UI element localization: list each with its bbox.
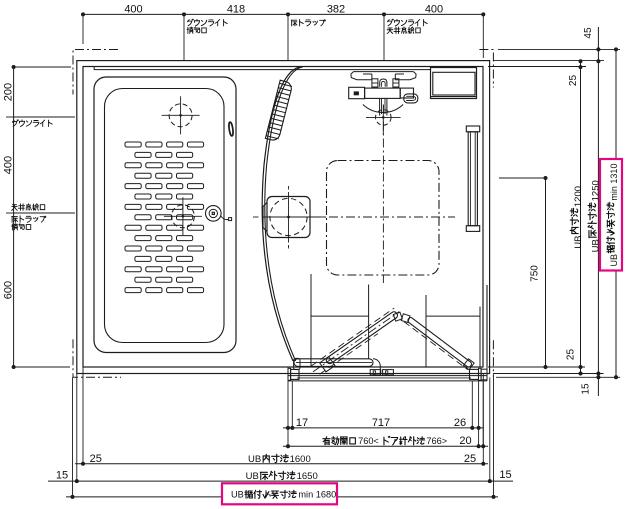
svg-text:418: 418	[227, 4, 245, 16]
svg-text:25: 25	[566, 349, 577, 361]
svg-text:UB: UB	[248, 454, 261, 465]
svg-text:400: 400	[124, 4, 142, 16]
svg-text:1600: 1600	[290, 454, 311, 465]
svg-text:1650: 1650	[297, 471, 318, 482]
svg-text:600: 600	[3, 281, 15, 299]
svg-text:15: 15	[56, 470, 68, 482]
svg-text:UB: UB	[609, 254, 619, 267]
svg-text:717: 717	[372, 417, 390, 429]
svg-text:min 1680: min 1680	[298, 490, 336, 500]
svg-text:1200: 1200	[573, 186, 584, 207]
svg-text:400: 400	[425, 4, 443, 16]
svg-text:400: 400	[3, 156, 15, 174]
svg-text:382: 382	[327, 4, 345, 16]
svg-text:min 1310: min 1310	[609, 164, 619, 201]
svg-text:25: 25	[568, 75, 579, 87]
svg-text:25: 25	[90, 453, 102, 465]
svg-text:UB: UB	[246, 471, 259, 482]
svg-text:45: 45	[583, 27, 594, 39]
svg-text:766>: 766>	[426, 436, 447, 446]
svg-text:17: 17	[296, 417, 308, 429]
svg-text:20: 20	[459, 435, 471, 447]
svg-text:200: 200	[3, 83, 15, 101]
svg-text:750: 750	[530, 265, 541, 282]
svg-text:UB: UB	[231, 490, 244, 500]
svg-text:15: 15	[581, 383, 592, 395]
svg-text:26: 26	[454, 417, 466, 429]
svg-text:760<: 760<	[358, 436, 379, 446]
svg-text:UB: UB	[573, 236, 584, 249]
svg-text:25: 25	[464, 453, 476, 465]
svg-text:15: 15	[499, 469, 511, 481]
